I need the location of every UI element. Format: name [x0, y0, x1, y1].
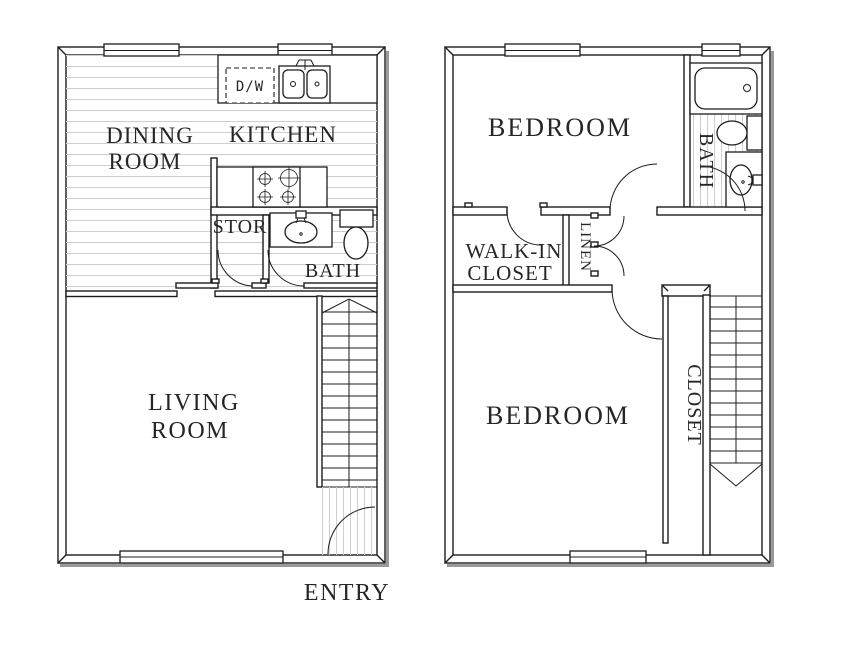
- bedroom-upper-label: BEDROOM: [488, 113, 632, 142]
- entry-vestibule-floor: [320, 487, 375, 555]
- window: [702, 44, 740, 56]
- kitchen-label: KITCHEN: [229, 122, 337, 147]
- walkin-closet-label-line1: WALK-IN: [466, 239, 563, 263]
- bathroom-vanity: [726, 152, 762, 207]
- bath-label: BATH: [695, 133, 717, 189]
- dishwasher-label: D/W: [236, 79, 264, 95]
- closet-label: CLOSET: [683, 364, 705, 446]
- dining-room-label-line2: ROOM: [108, 149, 181, 174]
- linen-label: LINEN: [577, 222, 593, 272]
- dining-room-label-line1: DINING: [106, 123, 194, 148]
- window: [505, 44, 580, 56]
- window: [104, 44, 179, 56]
- first-floor-plan: DINING ROOM KITCHEN D/W STOR BATH LIVING…: [58, 44, 390, 606]
- entry-label: ENTRY: [304, 580, 390, 606]
- floorplan-drawing: DINING ROOM KITCHEN D/W STOR BATH LIVING…: [0, 0, 843, 664]
- kitchen-sink: [279, 60, 330, 103]
- bathroom-vanity: [270, 211, 332, 247]
- bedroom-lower-label: BEDROOM: [486, 401, 630, 430]
- cooktop-counter: [217, 167, 327, 207]
- window: [570, 551, 646, 563]
- floorplan-page: DINING ROOM KITCHEN D/W STOR BATH LIVING…: [0, 0, 843, 664]
- living-room-label-line2: ROOM: [151, 418, 229, 444]
- bath-label: BATH: [305, 260, 361, 282]
- cooktop: [253, 167, 300, 207]
- bathtub: [690, 63, 762, 114]
- window: [120, 551, 283, 563]
- living-room-label-line1: LIVING: [148, 390, 240, 416]
- window: [278, 44, 332, 56]
- walkin-closet-label-line2: CLOSET: [467, 261, 552, 285]
- storage-label: STOR: [213, 216, 268, 238]
- second-floor-plan: BEDROOM BATH WALK-IN CLOSET LINEN BEDROO…: [445, 44, 773, 566]
